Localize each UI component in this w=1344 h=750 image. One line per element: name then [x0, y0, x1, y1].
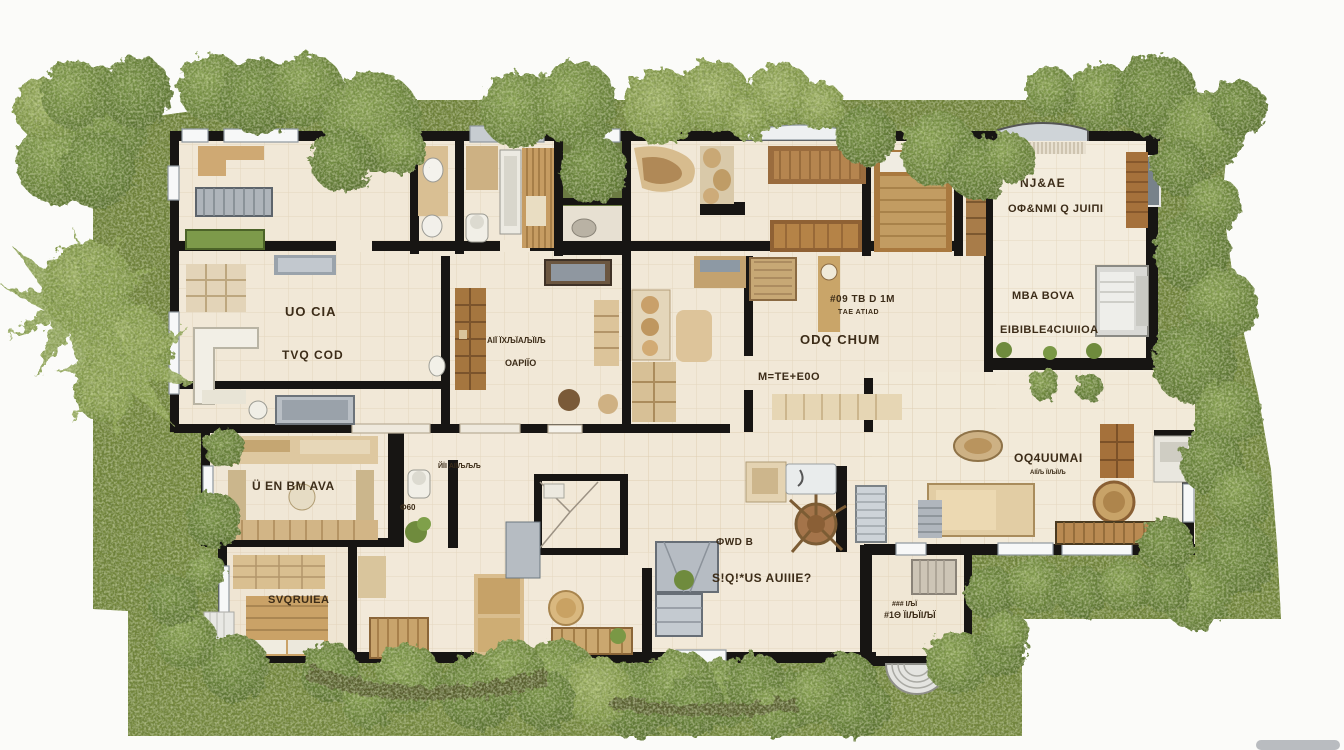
- svg-text:АІЇ ЇХЉЇАЉЇІЉ: АІЇ ЇХЉЇАЉЇІЉ: [487, 336, 546, 345]
- svg-text:SVQRUIEA: SVQRUIEA: [268, 594, 329, 606]
- svg-text:OQ4UUMAІ: OQ4UUMAІ: [1014, 451, 1083, 465]
- svg-text:MBA BOVA: MBA BOVA: [1012, 290, 1075, 302]
- svg-text:### ІЉЇ: ### ІЉЇ: [892, 600, 918, 608]
- svg-text:#1Θ ЇІЉЇІЉЇ: #1Θ ЇІЉЇІЉЇ: [884, 610, 936, 620]
- svg-text:ODQ CHUM: ODQ CHUM: [800, 332, 880, 347]
- svg-text:NJ&AE: NJ&AE: [1020, 176, 1066, 190]
- svg-text:Φ60: Φ60: [400, 503, 416, 512]
- svg-text:OΦ&NMI Q JUIПI: OΦ&NMI Q JUIПI: [1008, 203, 1103, 215]
- svg-text:ΦWD B: ΦWD B: [716, 537, 753, 548]
- svg-text:S!Q!*US AUIIIE?: S!Q!*US AUIIIE?: [712, 571, 812, 585]
- svg-text:Ü EN BM AVA: Ü EN BM AVA: [252, 478, 335, 493]
- svg-text:TVQ COD: TVQ COD: [282, 348, 344, 362]
- svg-text:ЙЇІ АІЇЉЉЉ: ЙЇІ АІЇЉЉЉ: [438, 461, 481, 470]
- svg-text:EІBІBLE4CІUІІOA: EІBІBLE4CІUІІOA: [1000, 324, 1099, 336]
- svg-text:АІЇЉ ЇІЉЇІЉ: АІЇЉ ЇІЉЇІЉ: [1030, 469, 1066, 476]
- svg-text:M=TE+E0O: M=TE+E0O: [758, 371, 820, 383]
- svg-text:UO CIA: UO CIA: [285, 304, 337, 319]
- svg-text:ОАРІЇО: ОАРІЇО: [505, 358, 536, 368]
- svg-text:#09 TB D 1M: #09 TB D 1M: [830, 294, 895, 305]
- svg-text:TΑE ATІAD: TΑE ATІAD: [838, 309, 879, 316]
